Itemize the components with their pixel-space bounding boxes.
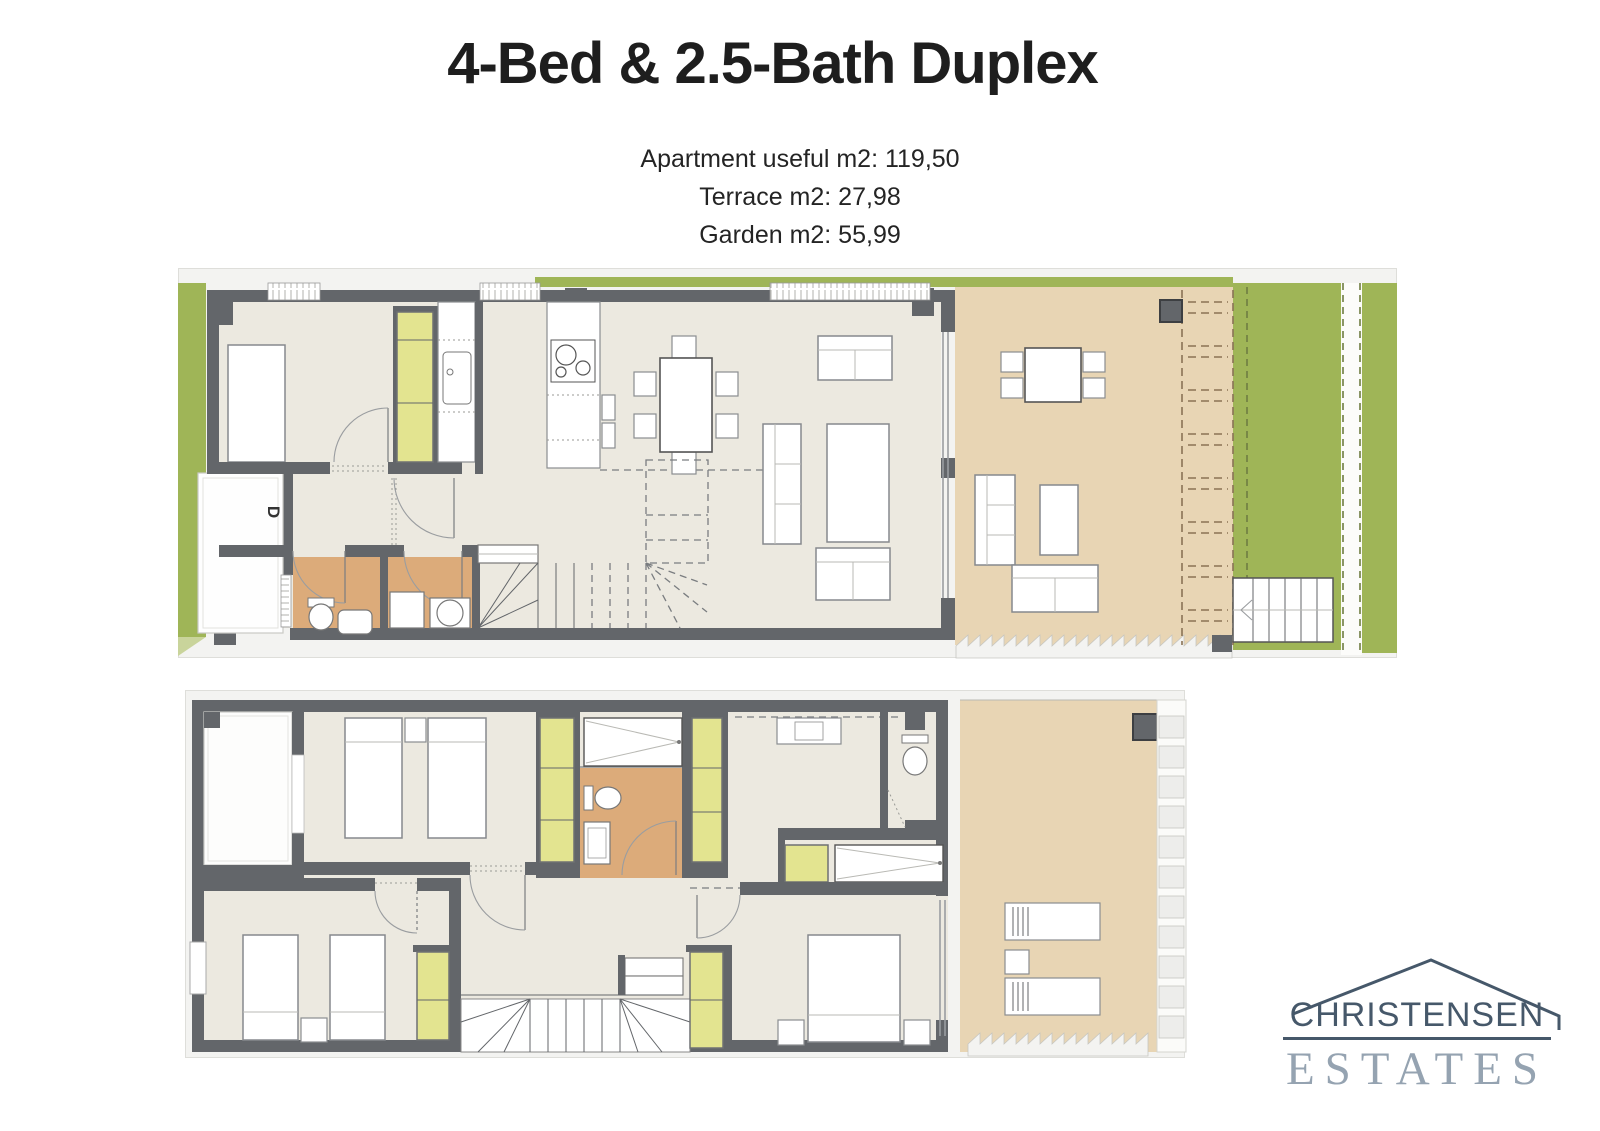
stat-apartment: Apartment useful m2: 119,50	[0, 140, 1600, 178]
hall-closet	[393, 306, 438, 464]
garden-stairs	[1233, 578, 1333, 642]
ground-floor-plan: D	[178, 268, 1398, 660]
pergola-louvers	[1157, 700, 1186, 1052]
stat-terrace: Terrace m2: 27,98	[0, 178, 1600, 216]
balcony-void	[192, 712, 304, 878]
logo-divider	[1283, 1037, 1551, 1040]
closet-b	[688, 712, 728, 878]
stat-garden: Garden m2: 55,99	[0, 216, 1600, 254]
bathroom-upper	[580, 712, 690, 878]
entrance-door-label: D	[264, 506, 283, 518]
brand-logo: CHRISTENSEN ESTATES	[1255, 938, 1585, 1113]
upper-floor-plan	[180, 680, 1190, 1065]
closet-d	[686, 945, 732, 1052]
page-title: 4-Bed & 2.5-Bath Duplex	[0, 30, 1545, 97]
logo-name: CHRISTENSEN	[1277, 996, 1557, 1035]
kitchen-cabinets	[438, 302, 483, 474]
area-stats: Apartment useful m2: 119,50 Terrace m2: …	[0, 140, 1600, 254]
closet-a	[536, 712, 580, 878]
logo-tagline: ESTATES	[1269, 1042, 1565, 1096]
floorplan-page: 4-Bed & 2.5-Bath Duplex Apartment useful…	[0, 0, 1600, 1131]
